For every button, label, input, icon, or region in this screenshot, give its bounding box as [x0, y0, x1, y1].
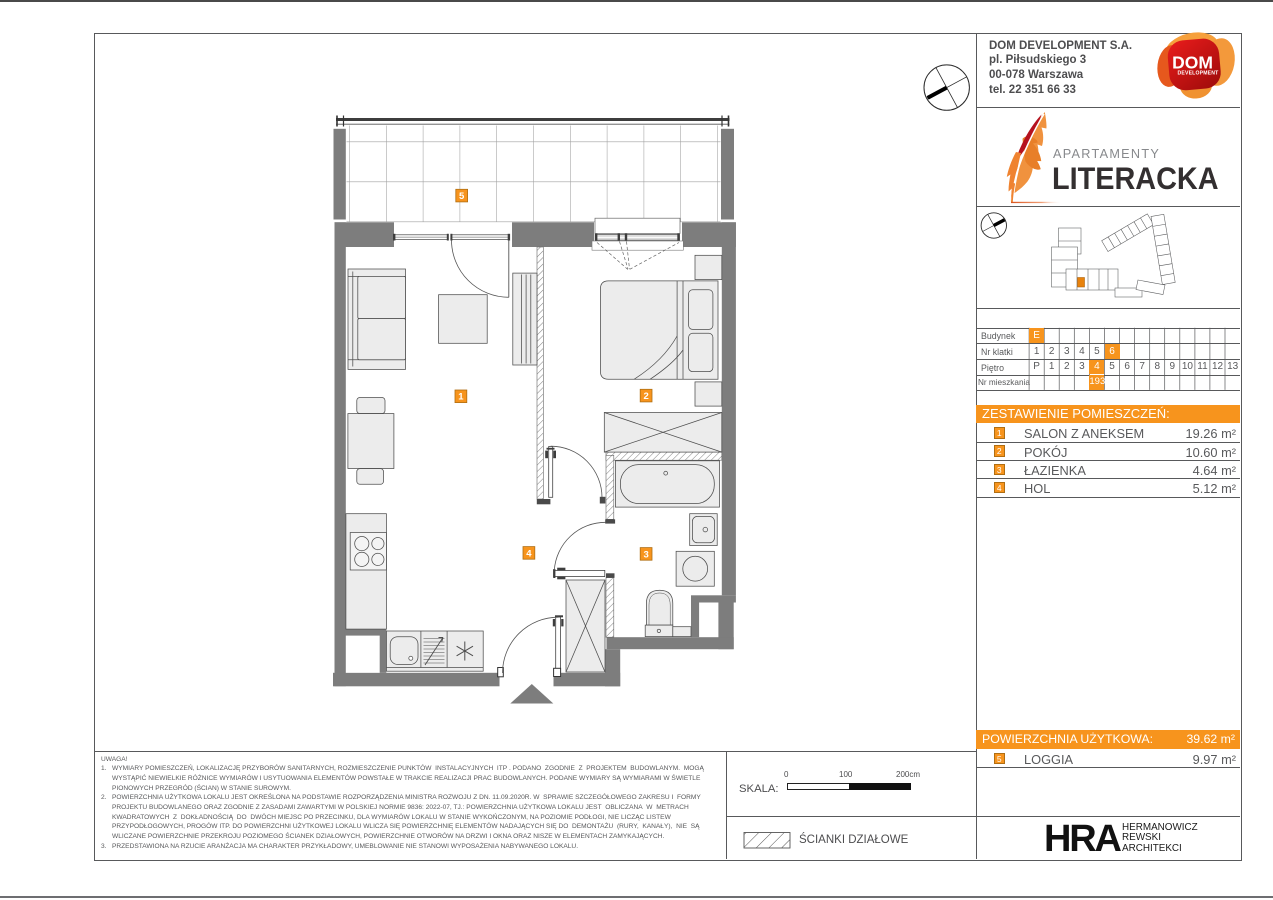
- svg-text:4: 4: [526, 548, 532, 559]
- svg-text:5: 5: [459, 191, 465, 202]
- svg-text:DOM: DOM: [1172, 53, 1213, 73]
- svg-text:1: 1: [458, 392, 464, 403]
- svg-text:2: 2: [643, 391, 648, 402]
- svg-text:DEVELOPMENT: DEVELOPMENT: [1178, 71, 1220, 77]
- svg-text:3: 3: [643, 549, 648, 560]
